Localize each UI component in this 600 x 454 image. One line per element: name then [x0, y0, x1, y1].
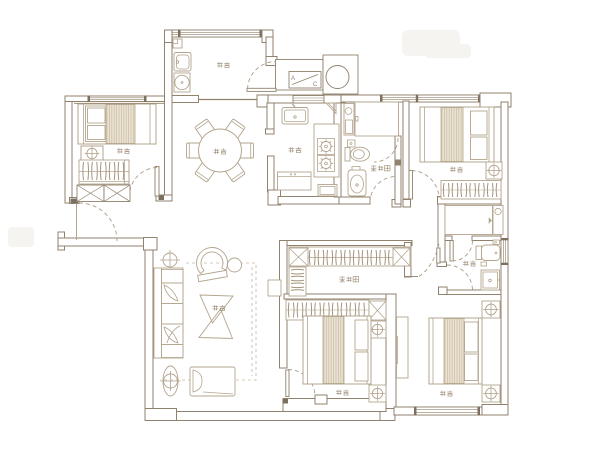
svg-text:A: A [291, 76, 295, 82]
svg-text:C: C [313, 82, 318, 88]
